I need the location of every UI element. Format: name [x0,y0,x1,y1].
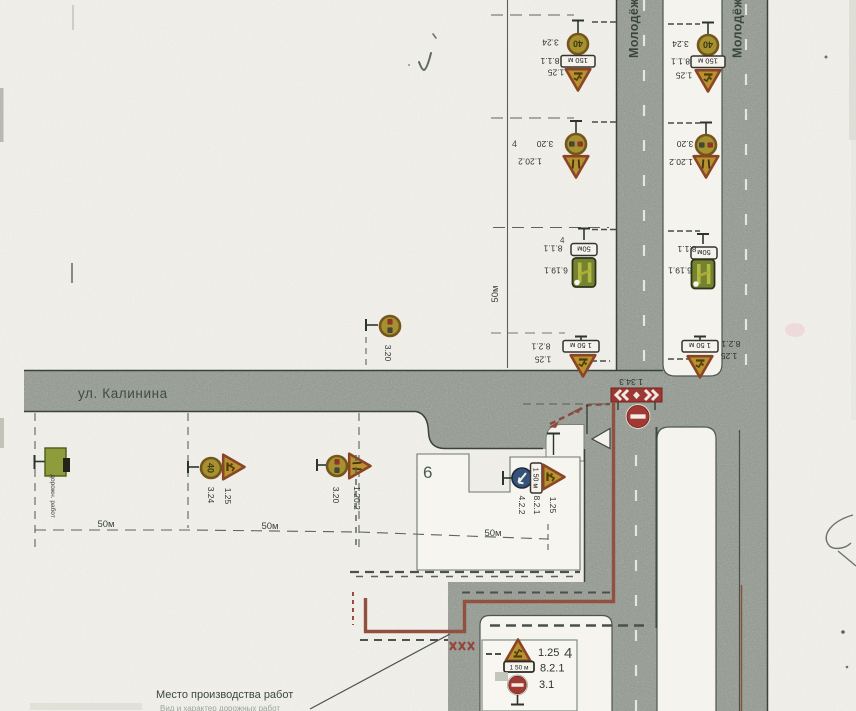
svg-text:50м: 50м [484,528,501,539]
svg-text:3.20: 3.20 [676,139,693,149]
svg-text:1.20.2: 1.20.2 [352,486,362,510]
svg-text:6.19.1: 6.19.1 [668,265,692,275]
svg-text:1.25: 1.25 [538,647,559,659]
svg-text:1.25: 1.25 [720,351,737,361]
svg-text:3.1: 3.1 [539,679,554,691]
svg-text:3.20: 3.20 [536,139,553,149]
svg-text:150 м: 150 м [568,56,588,65]
svg-text:1.25: 1.25 [675,70,692,80]
svg-text:50м: 50м [697,248,711,257]
svg-text:8.2.1: 8.2.1 [540,663,564,675]
svg-text:8.2.1: 8.2.1 [721,339,740,349]
svg-text:Молодёжная: Молодёжная [731,0,745,58]
svg-text:1.25: 1.25 [547,67,564,77]
svg-text:дорожн. работ: дорожн. работ [49,474,57,518]
svg-text:50м: 50м [577,245,591,254]
svg-text:1.25: 1.25 [548,497,558,514]
svg-text:4: 4 [564,645,572,662]
svg-text:1 50 м: 1 50 м [531,468,538,489]
svg-text:3.20: 3.20 [331,487,341,504]
svg-text:3.20: 3.20 [383,345,393,362]
svg-text:3.24: 3.24 [206,487,216,504]
svg-text:6.19.1: 6.19.1 [544,265,568,275]
svg-text:8.2.1: 8.2.1 [532,496,542,515]
svg-text:8.1.1: 8.1.1 [671,56,690,66]
svg-text:1.20.2: 1.20.2 [669,157,693,167]
svg-text:Молодёжная: Молодёжная [627,0,641,58]
svg-text:8.1.1: 8.1.1 [677,244,696,254]
svg-text:4: 4 [512,139,517,149]
svg-text:1.25: 1.25 [534,354,551,364]
svg-text:3.24: 3.24 [672,39,689,49]
svg-text:1.25: 1.25 [223,488,233,505]
svg-text:Вид и характер дорожных работ: Вид и характер дорожных работ [160,704,280,711]
svg-text:8.2.1: 8.2.1 [531,341,550,351]
svg-text:6: 6 [423,463,432,482]
svg-text:ул. Калинина: ул. Калинина [78,386,168,401]
svg-text:50м: 50м [490,285,501,302]
svg-text:8.1.1: 8.1.1 [540,56,559,66]
svg-text:3.24: 3.24 [542,37,559,47]
svg-text:50м: 50м [97,519,114,530]
svg-text:Место производства работ: Место производства работ [156,689,293,701]
svg-text:150 м: 150 м [698,57,718,66]
svg-text:1 50 м: 1 50 м [570,341,592,350]
svg-text:1 50 м: 1 50 м [689,341,711,350]
svg-text:4.2.2: 4.2.2 [517,496,527,515]
svg-text:1 50 м: 1 50 м [510,665,529,672]
svg-text:1.20.2: 1.20.2 [518,156,542,166]
svg-text:50м: 50м [261,521,278,532]
svg-text:1.34.3: 1.34.3 [619,377,643,387]
svg-text:4: 4 [560,236,565,245]
